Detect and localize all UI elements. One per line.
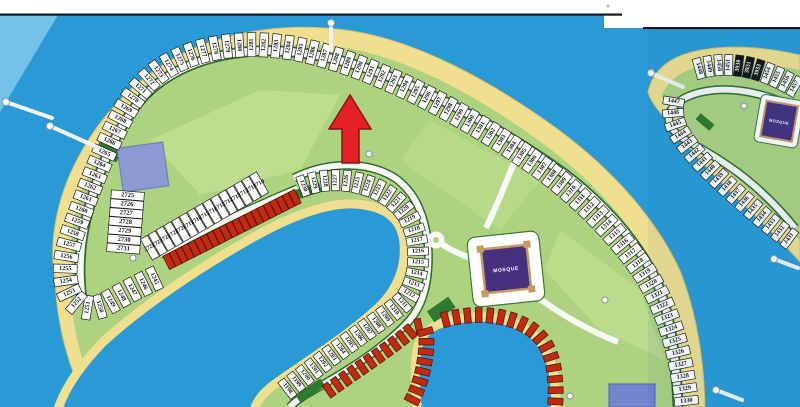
- svg-text:2731: 2731: [117, 245, 131, 253]
- scan-border-line-left: [0, 14, 622, 16]
- lamp-post-icon: [130, 255, 136, 261]
- townhouse-unit: [464, 308, 472, 324]
- jetty-lamp-icon: [328, 20, 335, 27]
- plot-cell-1227: 1227: [332, 170, 340, 191]
- scanned-plot-map-page: 1245124612471248124912501251125212531254…: [0, 0, 800, 407]
- svg-text:2727: 2727: [119, 209, 133, 217]
- plot-cell-1216: 1216: [407, 247, 428, 256]
- svg-text:2728: 2728: [119, 218, 133, 226]
- townhouse-unit: [548, 387, 563, 394]
- townhouse-unit: [548, 398, 563, 405]
- site-plan-map: 1245124612471248124912501251125212531254…: [0, 0, 800, 407]
- amenity-pool-northwest: [117, 142, 169, 192]
- townhouse-unit: [419, 338, 434, 345]
- townhouse-unit: [418, 348, 434, 356]
- svg-text:1227: 1227: [333, 174, 339, 186]
- svg-text:1280: 1280: [235, 39, 243, 52]
- townhouse-unit: [547, 375, 563, 383]
- scan-speck: [607, 5, 610, 8]
- svg-text:2729: 2729: [118, 227, 132, 235]
- plot-cell-1282: 1282: [259, 33, 269, 57]
- svg-text:1215: 1215: [412, 259, 424, 266]
- svg-text:2726: 2726: [120, 200, 134, 208]
- svg-text:1255: 1255: [59, 265, 72, 272]
- roundabout-center: [433, 237, 439, 243]
- svg-text:1282: 1282: [260, 39, 268, 52]
- minaret-icon: [523, 240, 531, 248]
- plot-cell-1255: 1255: [53, 264, 77, 273]
- townhouse-unit: [475, 308, 482, 323]
- mosque-main: MOSQUE: [467, 230, 546, 307]
- svg-text:2725: 2725: [121, 191, 135, 199]
- plot-cell-1280: 1280: [234, 33, 244, 57]
- svg-text:2730: 2730: [117, 236, 131, 244]
- townhouse-unit: [486, 308, 494, 324]
- svg-text:1216: 1216: [412, 248, 424, 255]
- plot-cell-1281: 1281: [247, 33, 256, 57]
- lamp-post-icon: [567, 393, 573, 399]
- jetty-lamp-icon: [3, 99, 10, 106]
- lamp-post-icon: [602, 297, 608, 303]
- page-seam-tone: [648, 30, 800, 407]
- plot-cell-1215: 1215: [407, 258, 428, 267]
- minaret-icon: [481, 290, 489, 298]
- lamp-post-icon: [366, 151, 372, 157]
- svg-text:1283: 1283: [272, 39, 280, 52]
- jetty-lamp-icon: [47, 123, 54, 130]
- svg-text:1281: 1281: [248, 38, 255, 50]
- minaret-icon: [528, 285, 536, 293]
- page-margin-top-right: [604, 0, 800, 28]
- minaret-icon: [476, 245, 484, 253]
- scan-border-line-right: [643, 27, 800, 29]
